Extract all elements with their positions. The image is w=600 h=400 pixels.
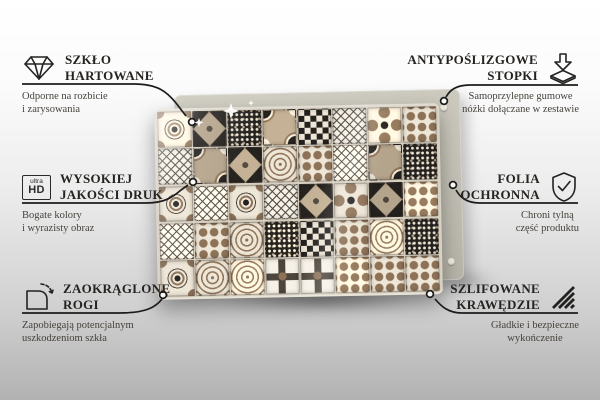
tile: [368, 107, 402, 143]
rounded-corner-icon: [22, 282, 54, 312]
tile: [300, 257, 334, 293]
tile: [265, 221, 299, 257]
tile: [332, 108, 366, 144]
tile-board: [154, 103, 443, 300]
tile: [194, 222, 228, 258]
tile: [159, 186, 193, 222]
tile: [334, 182, 368, 218]
tile: [265, 258, 299, 294]
callout-tempered-glass: SZKŁO HARTOWANE Odporne na rozbicie i za…: [22, 52, 154, 116]
tile: [194, 185, 228, 221]
callout-title: SZLIFOWANE KRAWĘDZIE: [450, 281, 540, 313]
callout-rounded-corners: ZAOKRĄGLONE ROGI Zapobiegają potencjalny…: [22, 281, 170, 345]
tile: [157, 111, 191, 147]
tile: [158, 148, 192, 184]
tile: [230, 222, 264, 258]
callout-anti-slip-feet: ANTYPOŚLIZGOWE STOPKI Samoprzylepne gumo…: [407, 52, 579, 116]
callout-polished-edges: SZLIFOWANE KRAWĘDZIE Gładkie i bezpieczn…: [450, 281, 579, 345]
tile: [335, 219, 369, 255]
tile-grid: [157, 106, 440, 297]
tile: [192, 110, 226, 146]
tile: [193, 148, 227, 184]
tile: [403, 144, 437, 180]
tile: [404, 181, 438, 217]
ultra-hd-icon: ultra HD: [22, 175, 51, 200]
callout-title: ANTYPOŚLIZGOWE STOPKI: [407, 52, 538, 84]
tile: [370, 256, 404, 292]
anti-slip-foot: [448, 258, 455, 265]
callout-subtitle: Zapobiegają potencjalnym uszkodzeniom sz…: [22, 320, 170, 345]
callout-subtitle: Odporne na rozbicie i zarysowania: [22, 91, 154, 116]
tile: [300, 220, 334, 256]
callout-subtitle: Bogate kolory i wyrazisty obraz: [22, 210, 163, 235]
tile: [370, 219, 404, 255]
callout-subtitle: Gładkie i bezpieczne wykończenie: [491, 320, 579, 345]
callout-subtitle: Chroni tylną część produktu: [516, 210, 579, 235]
tile: [262, 109, 296, 145]
tile: [406, 255, 440, 291]
shield-check-icon: [549, 171, 579, 203]
callout-protective-film: FOLIA OCHRONNA Chroni tylną część produk…: [460, 171, 579, 235]
tile: [263, 146, 297, 182]
diamond-icon: [22, 54, 56, 82]
tile: [227, 110, 261, 146]
callout-title: SZKŁO HARTOWANE: [65, 52, 154, 84]
callout-title: FOLIA OCHRONNA: [460, 171, 540, 203]
anti-slip-feet-icon: [547, 51, 579, 85]
tile: [228, 147, 262, 183]
tile: [229, 184, 263, 220]
tile: [297, 108, 331, 144]
polished-edges-icon: [549, 283, 579, 311]
tile: [368, 144, 402, 180]
callout-title: WYSOKIEJ JAKOŚCI DRUK: [60, 171, 163, 203]
tile: [369, 182, 403, 218]
tile: [298, 146, 332, 182]
tile: [405, 218, 439, 254]
callout-subtitle: Samoprzylepne gumowe nóżki dołączane w z…: [462, 91, 579, 116]
product-infographic: SZKŁO HARTOWANE Odporne na rozbicie i za…: [0, 0, 600, 400]
tile: [230, 259, 264, 295]
tile: [159, 223, 193, 259]
tile: [264, 184, 298, 220]
callout-title: ZAOKRĄGLONE ROGI: [63, 281, 170, 313]
callout-hd-print: ultra HD WYSOKIEJ JAKOŚCI DRUK Bogate ko…: [22, 171, 163, 235]
tile: [335, 257, 369, 293]
tile: [195, 260, 229, 296]
tile: [333, 145, 367, 181]
tile: [299, 183, 333, 219]
